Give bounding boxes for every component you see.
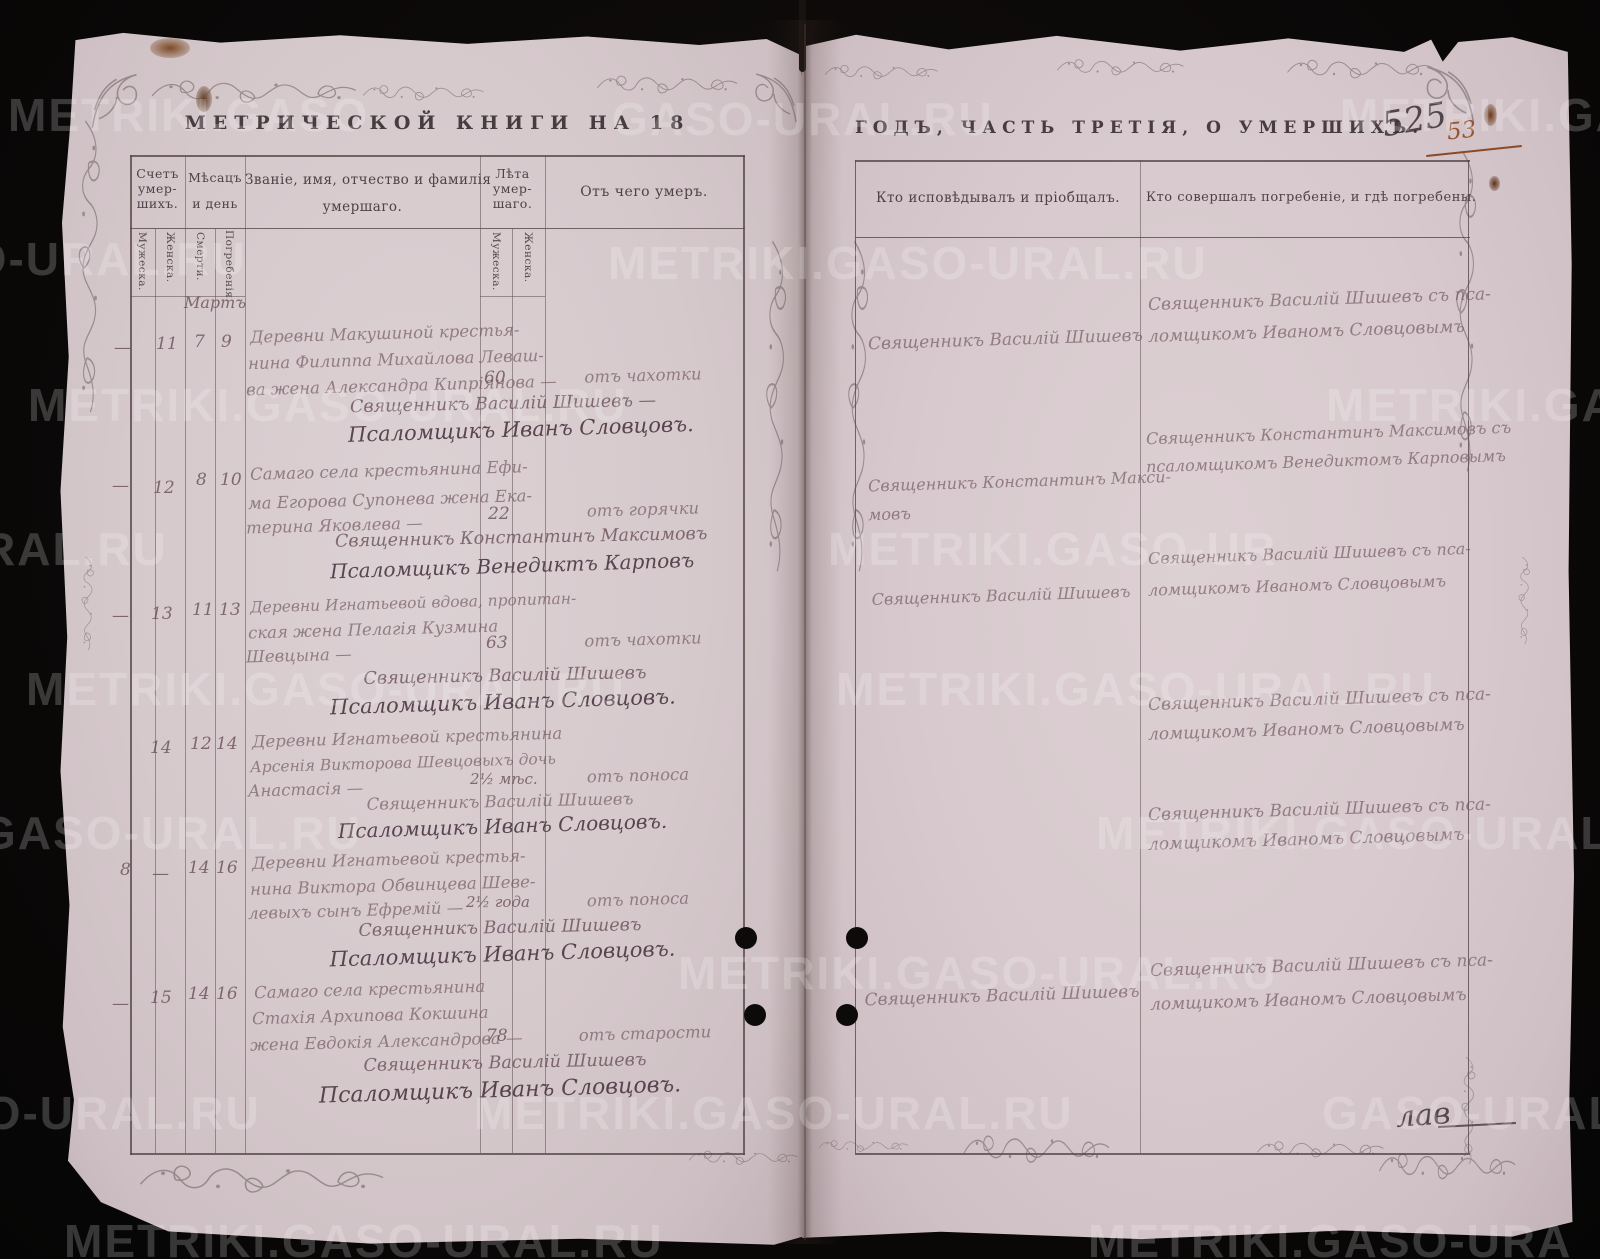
header-rule (130, 228, 745, 229)
subheader-death: Смерти. (194, 232, 206, 281)
entry-burial-day: 16 (216, 984, 238, 1004)
entry-count-female: 12 (153, 478, 175, 498)
subcolumn-rule (155, 228, 156, 1153)
header-burial: Кто совершалъ погребеніе, и гдѣ погребен… (1146, 190, 1464, 205)
entry-death-day: 12 (190, 734, 212, 754)
entry-death-day: 14 (188, 984, 210, 1004)
punch-hole (836, 1004, 858, 1026)
entry-count-female: 11 (156, 334, 178, 354)
scanned-register-spread: МЕТРИЧЕСКОЙ КНИГИ НА 18 Счетъ умер- шихъ… (0, 0, 1600, 1259)
header-rule (855, 237, 1470, 238)
left-page-title: МЕТРИЧЕСКОЙ КНИГИ НА 18 (130, 112, 745, 134)
month-label: Мартъ (184, 293, 246, 312)
subheader-burial: Погребенія. (223, 230, 235, 302)
subcolumn-rule (215, 228, 216, 1153)
entry-count-male: — (112, 476, 129, 496)
column-rule (1140, 160, 1141, 1153)
table-border (743, 155, 745, 1155)
table-border (130, 1153, 745, 1155)
entry-death-day: 14 (188, 858, 210, 878)
paper-stain (1484, 104, 1497, 126)
entry-count-male: — (114, 338, 131, 358)
paper-stain (196, 86, 212, 112)
table-border (855, 160, 1470, 162)
entry-count-male: — (112, 994, 129, 1014)
entry-age: 22 (488, 504, 510, 524)
entry-age: 78 (486, 1026, 508, 1046)
paper-stain (150, 38, 190, 58)
header-confessor: Кто исповѣдывалъ и пріобщалъ. (862, 190, 1134, 206)
table-border (1468, 160, 1469, 1153)
entry-count-female: 13 (151, 604, 173, 624)
header-count: Счетъ (130, 166, 185, 181)
subheader-age-female: Женска. (522, 232, 534, 283)
page-number-new: 53 (1446, 117, 1478, 146)
table-border (855, 1153, 1470, 1155)
margin-scribble: лав (1395, 1096, 1452, 1135)
subheader-female: Женска. (164, 232, 176, 283)
entry-age: 60 (484, 368, 506, 388)
header-cause: Отъ чего умеръ. (545, 184, 743, 200)
entry-count-male: 8 (120, 860, 131, 880)
table-border (855, 160, 856, 1153)
entry-age: 2½ года (466, 893, 530, 911)
entry-death-day: 7 (194, 332, 205, 352)
entry-burial-day: 14 (216, 734, 238, 754)
paper-stain (1489, 176, 1500, 191)
entry-age: 63 (486, 633, 508, 653)
entry-count-male: — (112, 606, 129, 626)
header-age: Лѣта (480, 166, 545, 181)
entry-count-female: — (152, 864, 169, 884)
table-border (130, 155, 745, 157)
punch-hole (735, 927, 757, 949)
table-border (130, 155, 132, 1155)
header-name: Званіе, имя, отчество и фамилія (245, 172, 480, 188)
punch-hole (846, 927, 868, 949)
subheader-male: Мужеска. (136, 232, 148, 291)
entry-count-female: 15 (150, 988, 172, 1008)
entry-burial-day: 10 (220, 470, 242, 490)
header-month-day: Мѣсацъ (185, 170, 245, 185)
entry-death-day: 8 (196, 470, 207, 490)
entry-burial-day: 16 (216, 858, 238, 878)
column-rule (545, 155, 546, 1153)
entry-age: 2½ мѣс. (470, 770, 538, 788)
punch-hole (744, 1004, 766, 1026)
entry-burial-day: 13 (219, 600, 241, 620)
entry-death-day: 11 (192, 600, 214, 620)
subheader-age-male: Мужеска. (490, 232, 502, 291)
entry-count-female: 14 (150, 738, 172, 758)
right-page-title: ГОДЪ, ЧАСТЬ ТРЕТІЯ, О УМЕРШИХЪ. (855, 118, 1415, 138)
entry-burial-day: 9 (221, 332, 232, 352)
gutter-crease (804, 24, 806, 1240)
